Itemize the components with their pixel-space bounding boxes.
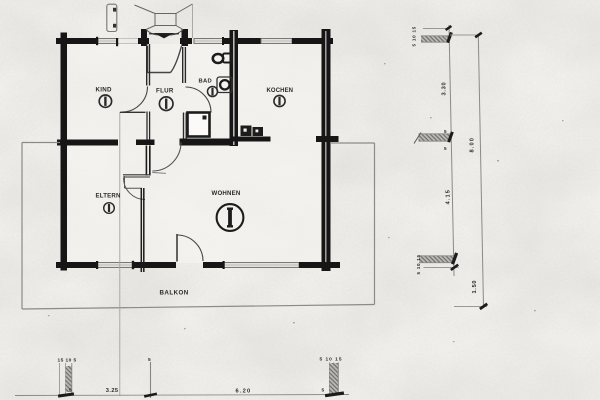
svg-text:8.00: 8.00 — [470, 137, 476, 152]
svg-text:6.20: 6.20 — [236, 389, 252, 395]
svg-text:1.50: 1.50 — [472, 280, 478, 294]
svg-text:3.25: 3.25 — [106, 388, 119, 394]
svg-text:FLUR: FLUR — [156, 88, 174, 95]
svg-text:5: 5 — [148, 357, 151, 363]
svg-text:5: 5 — [69, 388, 72, 394]
svg-text:3.30: 3.30 — [442, 82, 448, 96]
svg-text:ELTERN: ELTERN — [96, 193, 121, 200]
svg-text:WOHNEN: WOHNEN — [212, 190, 241, 197]
svg-text:KIND: KIND — [96, 87, 113, 94]
svg-text:5: 5 — [444, 129, 447, 134]
svg-text:5 10 15: 5 10 15 — [320, 357, 343, 363]
svg-text:BAD: BAD — [199, 79, 212, 85]
svg-text:5: 5 — [444, 146, 447, 151]
svg-text:15 10 5: 15 10 5 — [58, 358, 77, 364]
svg-text:4.15: 4.15 — [446, 189, 452, 204]
svg-text:KOCHEN: KOCHEN — [267, 88, 294, 94]
svg-text:5: 5 — [322, 388, 325, 394]
svg-text:5 10 15: 5 10 15 — [416, 254, 421, 274]
svg-text:BALKON: BALKON — [160, 290, 189, 297]
svg-text:5 10 15: 5 10 15 — [412, 26, 417, 47]
